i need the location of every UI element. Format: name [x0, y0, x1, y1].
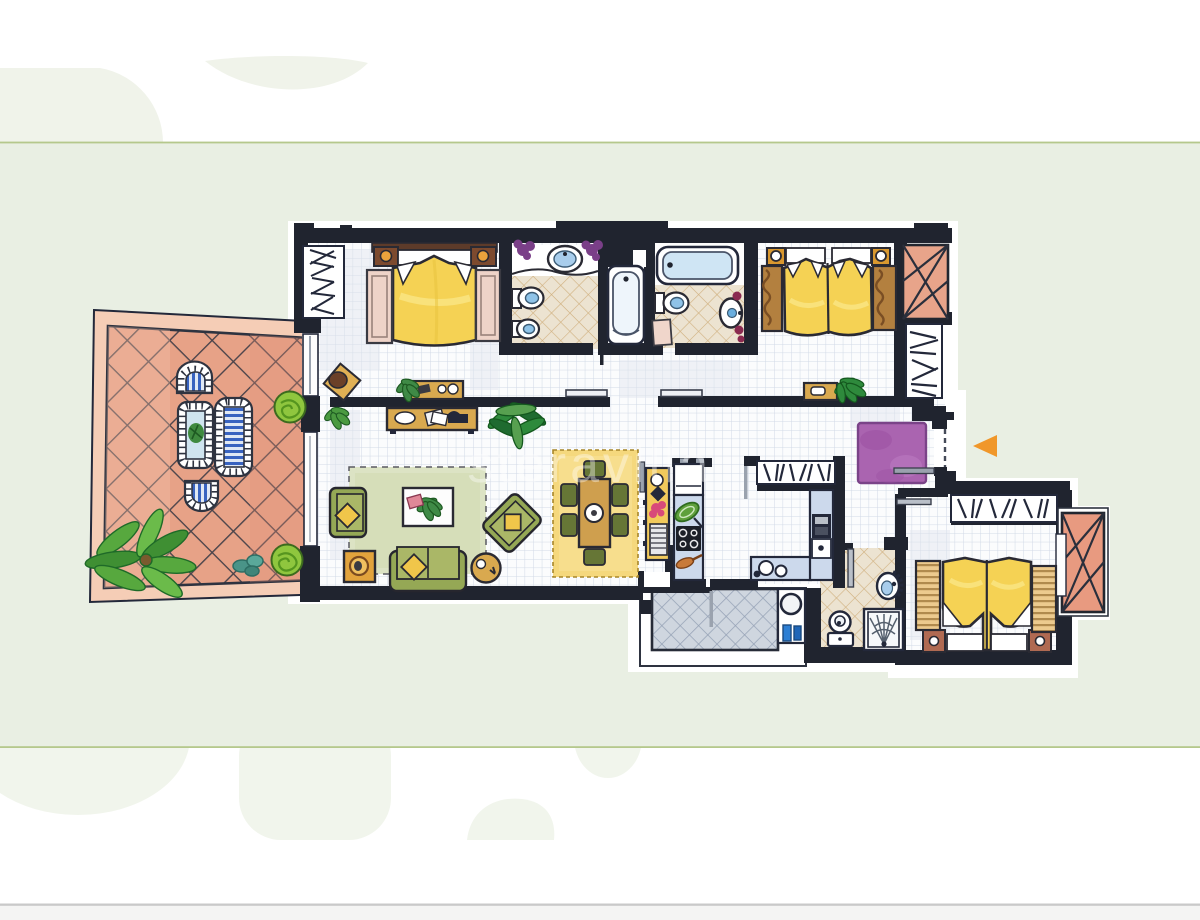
- svg-text:steravilla: steravilla: [467, 436, 712, 494]
